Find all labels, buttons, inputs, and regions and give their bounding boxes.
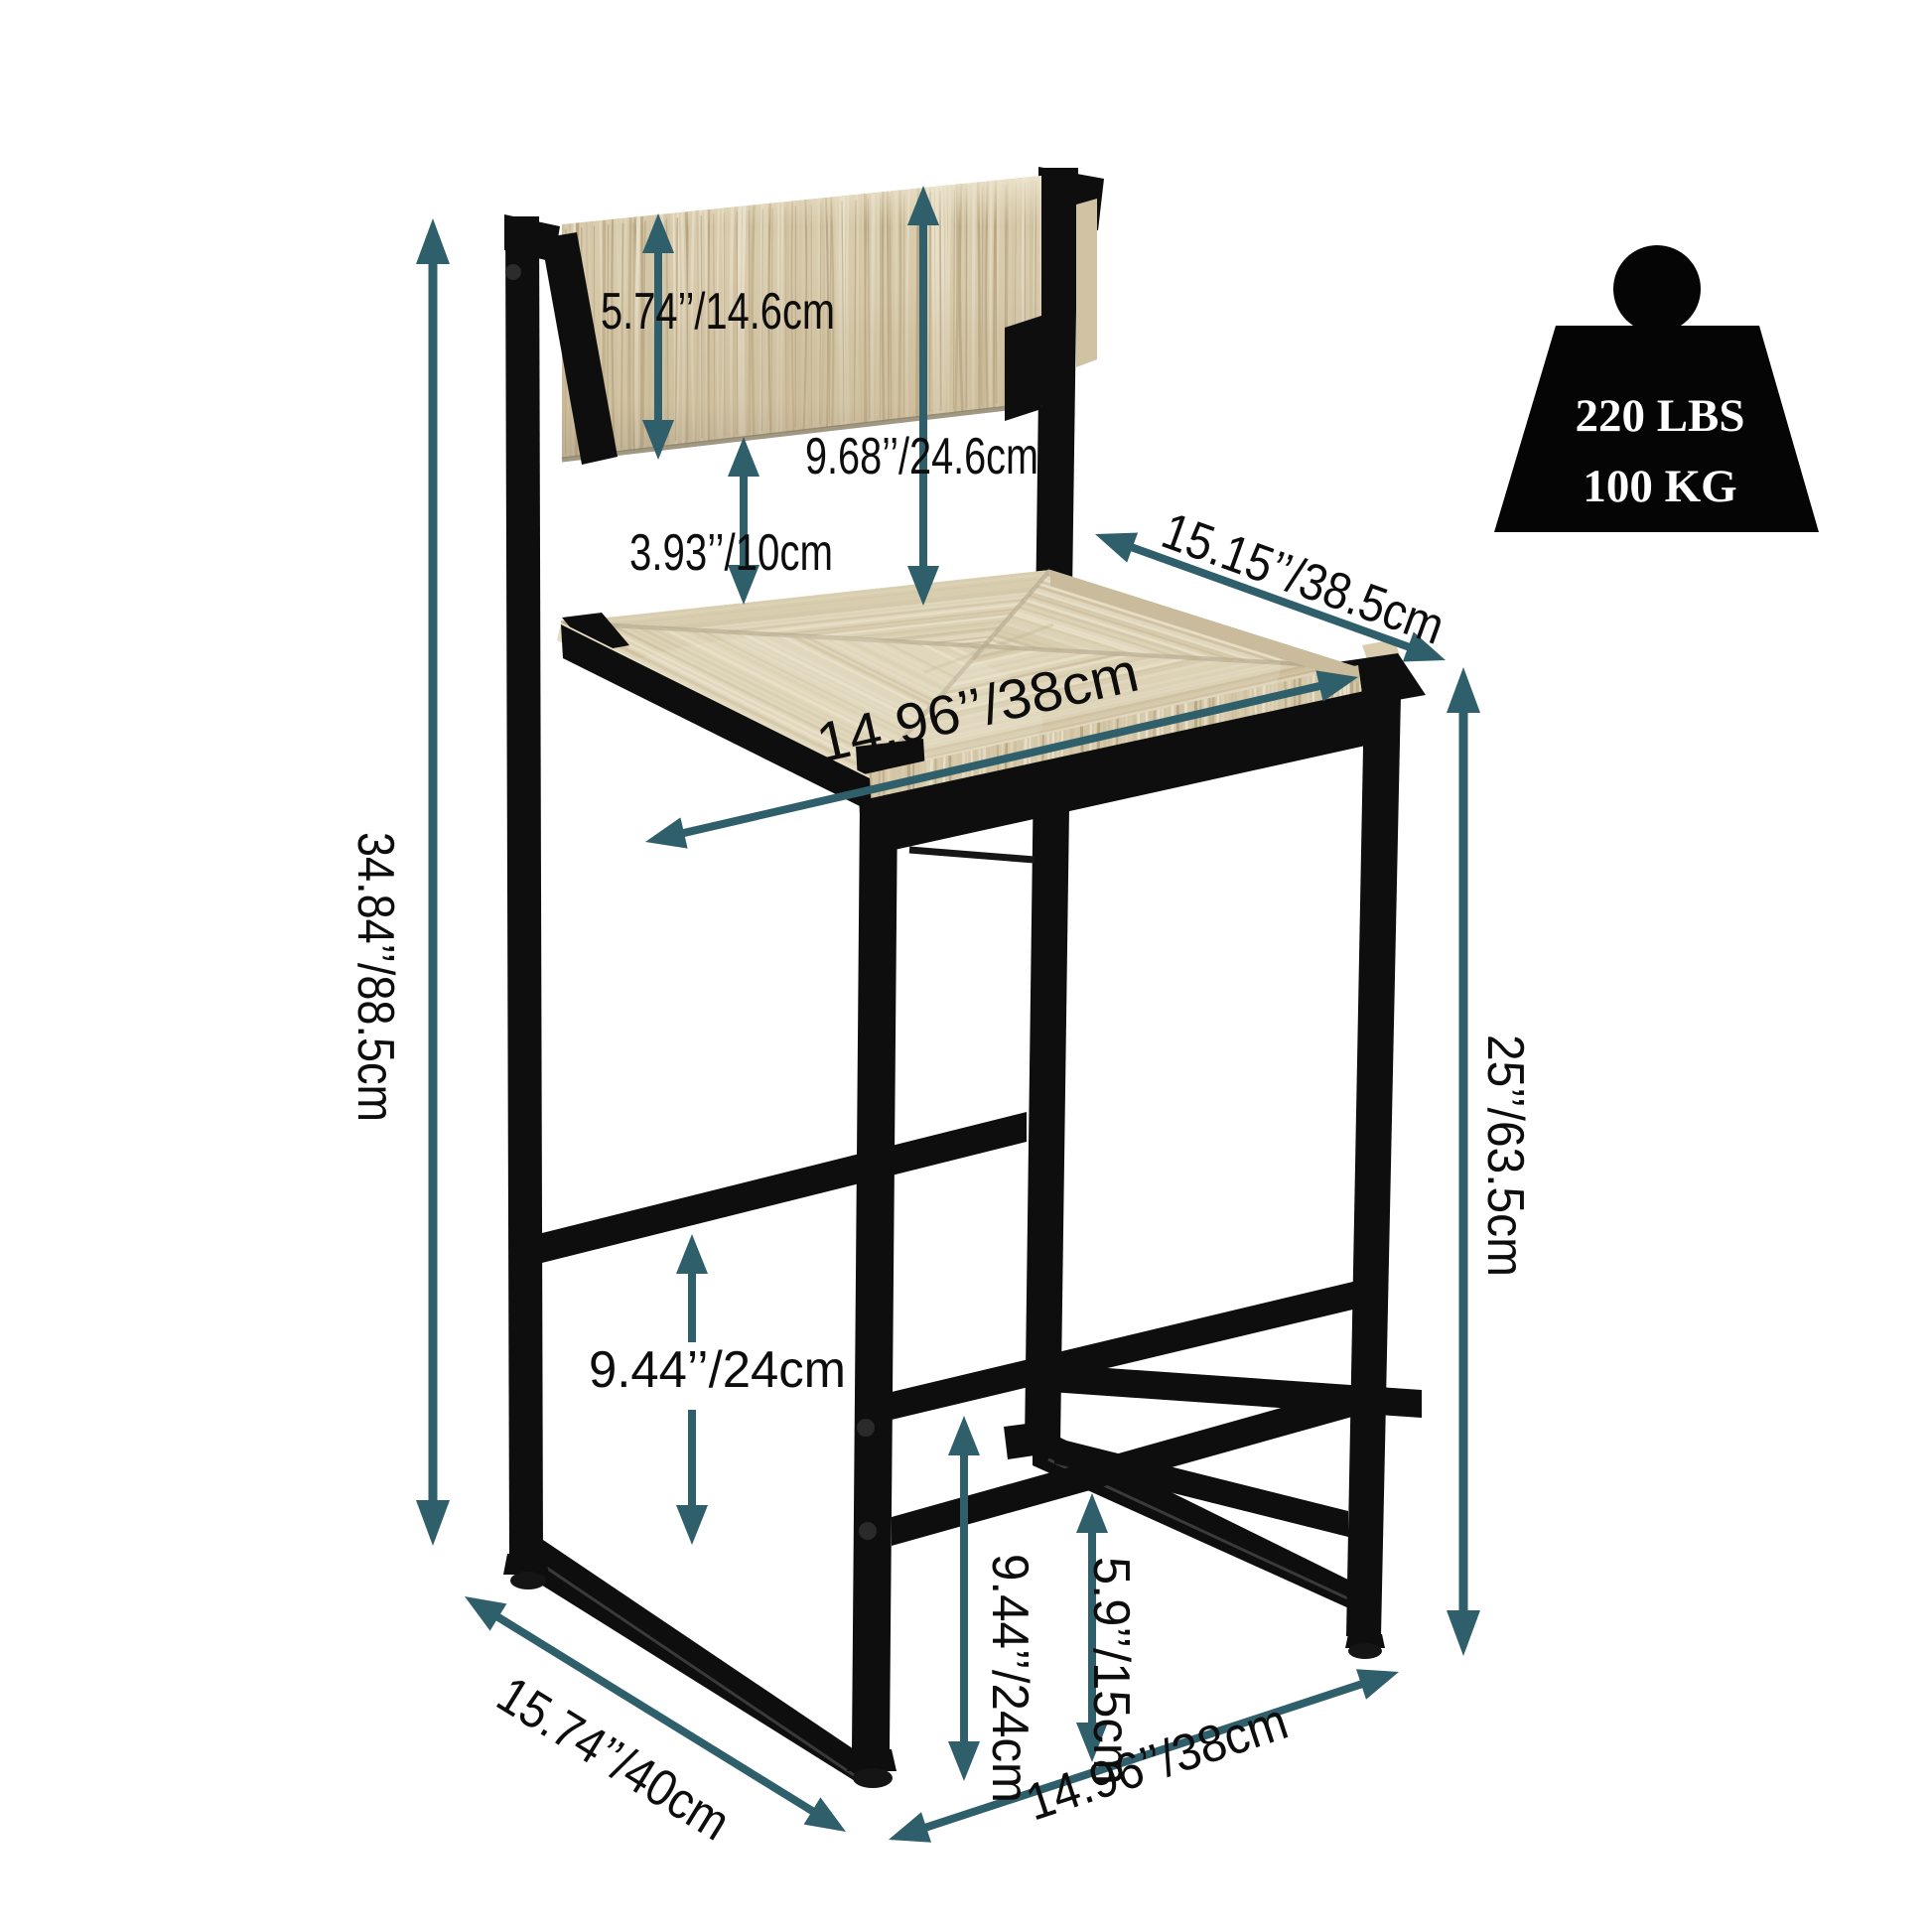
svg-text:9.68’’/24.6cm: 9.68’’/24.6cm (805, 428, 1038, 485)
svg-text:25’’/63.5cm: 25’’/63.5cm (1476, 1035, 1534, 1277)
svg-text:3.93’’/10cm: 3.93’’/10cm (629, 524, 833, 582)
svg-text:9.44’’/24cm: 9.44’’/24cm (981, 1554, 1038, 1803)
svg-text:34.84’’/88.5cm: 34.84’’/88.5cm (346, 832, 404, 1122)
svg-text:100 KG: 100 KG (1583, 461, 1736, 512)
svg-text:5.74’’/14.6cm: 5.74’’/14.6cm (601, 283, 835, 341)
svg-text:9.44’’/24cm: 9.44’’/24cm (589, 1341, 846, 1399)
svg-text:220 LBS: 220 LBS (1575, 390, 1744, 442)
